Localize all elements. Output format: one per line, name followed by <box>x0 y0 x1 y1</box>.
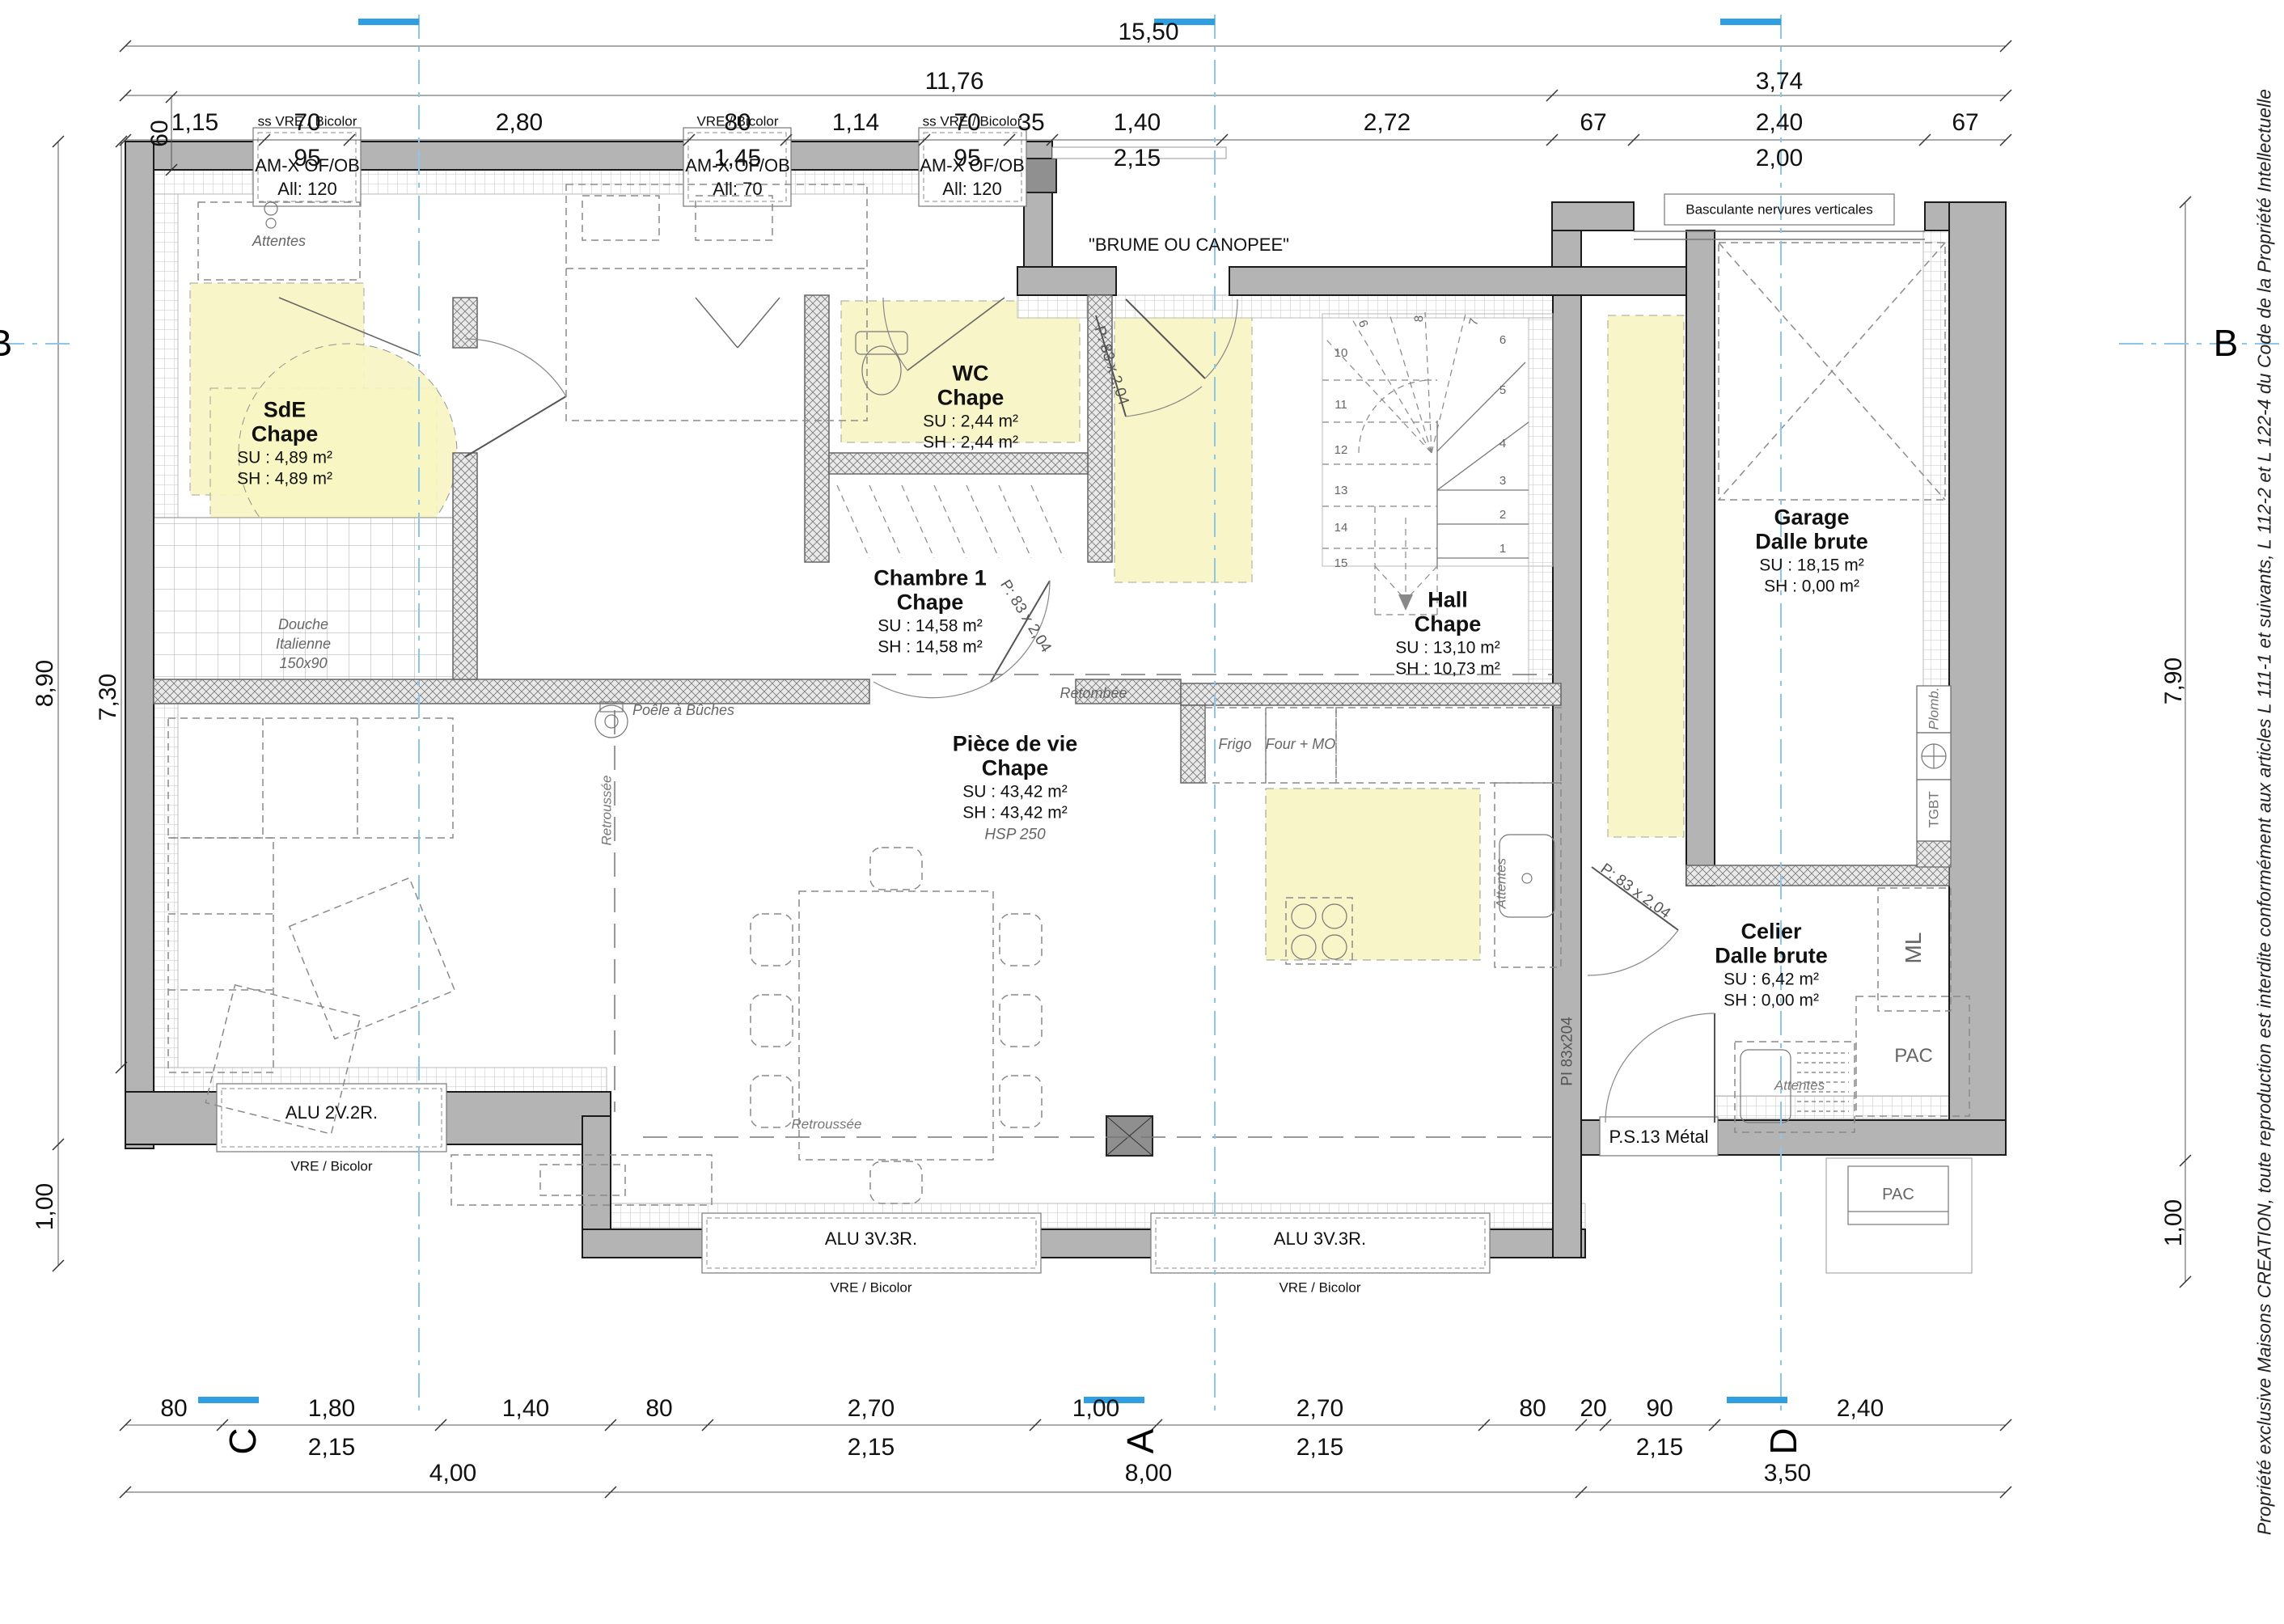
window-sill-label: All: 70 <box>713 180 762 198</box>
dim-bottom: 1,00 <box>1072 1397 1119 1421</box>
dim-top: 2,80 <box>496 111 543 135</box>
room-name-sde: SdE <box>264 400 307 421</box>
douche-label: Italienne <box>276 636 331 651</box>
stair-step-number: 7 <box>1466 317 1482 327</box>
room-su-sde: SU : 4,89 m² <box>237 450 332 467</box>
room-name-celier: Celier <box>1740 921 1801 943</box>
stair-step-number: 15 <box>1334 556 1348 570</box>
four-mo-label: Four + MO <box>1266 737 1336 751</box>
stair-step-number: 11 <box>1334 398 1347 412</box>
room-name-hall: Hall <box>1427 590 1468 611</box>
dim-top-sub: 2,00 <box>1756 146 1803 171</box>
room-note-hsp: HSP 250 <box>984 827 1045 843</box>
dim-bottom: 1,80 <box>308 1397 355 1421</box>
stair-step-number: 2 <box>1499 508 1506 522</box>
room-sh-hall: SH : 10,73 m² <box>1395 661 1500 678</box>
stair-step-number: 4 <box>1499 437 1506 450</box>
dim-bottom: 2,40 <box>1837 1397 1884 1421</box>
stair-step-number: 6 <box>1499 333 1506 347</box>
dim-bottom: 1,40 <box>502 1397 549 1421</box>
dim-bottom-sub: 2,15 <box>308 1436 355 1460</box>
dim-top: 67 <box>1952 111 1978 135</box>
attentes-label: Attentes <box>1495 858 1508 908</box>
room-sh-sde: SH : 4,89 m² <box>237 471 332 488</box>
room-floor-garage: Dalle brute <box>1755 531 1868 553</box>
stair-step-number: 12 <box>1334 443 1348 457</box>
window-type-label: VRE / Bicolor <box>830 1281 911 1295</box>
room-sh-garage: SH : 0,00 m² <box>1764 578 1859 595</box>
stair-step-number: 3 <box>1499 474 1506 488</box>
room-name-piece-de-vie: Pièce de vie <box>953 734 1078 755</box>
section-marker-d: D <box>1765 1427 1802 1454</box>
dim-bottom-sub: 2,15 <box>848 1436 895 1460</box>
dim-total-width: 15,50 <box>1118 20 1178 44</box>
tgbt-label: TGBT <box>1927 791 1941 827</box>
section-marker-b-left: B <box>0 324 12 362</box>
room-floor-wc: Chape <box>937 387 1005 409</box>
dim-bottom-sub: 2,15 <box>1636 1436 1683 1460</box>
stair-step-number: 5 <box>1499 383 1506 397</box>
room-floor-chambre: Chape <box>897 592 964 614</box>
stair-step-number: 8 <box>1412 315 1426 323</box>
room-floor-sde: Chape <box>252 424 319 446</box>
stair-step-number: 13 <box>1334 484 1348 497</box>
window-sill-label: All: 120 <box>942 180 1001 198</box>
dim-bottom: 80 <box>1519 1397 1546 1421</box>
stair-step-number: 10 <box>1334 346 1348 360</box>
room-floor-piece-de-vie: Chape <box>982 758 1049 780</box>
stair-step-number: 1 <box>1499 542 1506 556</box>
room-sh-piece-de-vie: SH : 43,42 m² <box>962 805 1068 822</box>
dim-right: 1,00 <box>2162 1199 2186 1246</box>
dim-bottom: 80 <box>160 1397 187 1421</box>
exterior-door-label: P.S.13 Métal <box>1609 1128 1708 1146</box>
dim-top: 1,14 <box>832 111 879 135</box>
window-label: ALU 3V.3R. <box>825 1230 917 1248</box>
dim-bottom: 90 <box>1646 1397 1673 1421</box>
dim-top: 1,15 <box>171 111 218 135</box>
section-marker-c: C <box>224 1427 261 1454</box>
porch-label: "BRUME OU CANOPEE" <box>1089 236 1289 254</box>
window-sill-label: All: 120 <box>277 180 336 198</box>
room-su-wc: SU : 2,44 m² <box>923 413 1018 430</box>
dim-left: 60 <box>148 120 172 146</box>
room-su-hall: SU : 13,10 m² <box>1395 640 1500 657</box>
dim-top-row2: 11,76 <box>925 70 984 94</box>
frigo-label: Frigo <box>1218 737 1251 751</box>
attentes-label: Attentes <box>1774 1079 1825 1093</box>
dim-top-row2: 3,74 <box>1756 70 1803 94</box>
dim-bottom-row2: 3,50 <box>1764 1461 1811 1486</box>
window-label: ALU 2V.2R. <box>285 1104 378 1122</box>
dim-top-sub: 2,15 <box>1114 146 1161 171</box>
garage-door-projection <box>1719 243 1945 500</box>
window-type-label: ss VRE / Bicolor <box>923 115 1022 129</box>
pac-interior-label: PAC <box>1894 1047 1933 1066</box>
dim-top: 67 <box>1580 111 1606 135</box>
window-label: AM-X OF/OB <box>920 157 1025 175</box>
window-type-label: ss VRE / Bicolor <box>258 115 357 129</box>
garage-door-label: Basculante nervures verticales <box>1686 203 1873 217</box>
window-type-label: VRE / Bicolor <box>696 115 778 129</box>
window-type-label: VRE / Bicolor <box>290 1160 372 1174</box>
window-label: AM-X OF/OB <box>255 157 360 175</box>
room-name-garage: Garage <box>1774 507 1849 529</box>
stairs: 1 2 3 4 5 6 7 8 9 10 11 12 13 14 15 <box>1322 312 1553 615</box>
dim-bottom: 2,70 <box>1296 1397 1343 1421</box>
dimension-ticks <box>53 40 2191 1498</box>
room-floor-celier: Dalle brute <box>1715 945 1828 967</box>
window-label: AM-X OF/OB <box>685 157 790 175</box>
pac-exterior-label: PAC <box>1882 1186 1914 1203</box>
section-marker-a: A <box>1122 1429 1159 1454</box>
dim-bottom: 80 <box>645 1397 672 1421</box>
room-sh-celier: SH : 0,00 m² <box>1724 992 1819 1009</box>
copyright-notice: Propriété exclusive Maisons CREATION, to… <box>2256 89 2274 1535</box>
window-label: ALU 3V.3R. <box>1274 1230 1366 1248</box>
douche-label: Douche <box>278 617 328 632</box>
stair-step-number: 9 <box>1356 318 1372 329</box>
stair-step-number: 14 <box>1334 521 1348 535</box>
dim-bottom-row2: 8,00 <box>1125 1461 1172 1486</box>
retombee-label: Retombée <box>1060 686 1127 700</box>
dim-right: 7,90 <box>2162 658 2186 704</box>
dim-bottom-sub: 2,15 <box>1296 1436 1343 1460</box>
room-name-chambre: Chambre 1 <box>873 568 987 590</box>
window-type-label: VRE / Bicolor <box>1279 1281 1360 1295</box>
plomb-label: Plomb. <box>1927 687 1941 730</box>
dim-top: 2,72 <box>1364 111 1411 135</box>
room-su-garage: SU : 18,15 m² <box>1759 557 1864 574</box>
section-marks <box>198 19 1787 1403</box>
room-sh-wc: SH : 2,44 m² <box>923 434 1018 451</box>
room-su-celier: SU : 6,42 m² <box>1724 971 1819 988</box>
douche-label: 150x90 <box>279 656 327 670</box>
dim-bottom-row2: 4,00 <box>429 1461 476 1486</box>
poele-label: Poêle à Bûches <box>632 703 734 717</box>
dimension-lines <box>58 46 2185 1492</box>
retroussee-label: Retroussée <box>600 776 614 846</box>
room-su-chambre: SU : 14,58 m² <box>878 618 983 635</box>
interior-door-label: PI 83x204 <box>1560 1017 1576 1086</box>
retroussee-label: Retroussée <box>792 1118 862 1131</box>
room-name-wc: WC <box>953 363 989 385</box>
section-marker-b-right: B <box>2214 324 2239 362</box>
room-sh-chambre: SH : 14,58 m² <box>878 639 983 656</box>
room-su-piece-de-vie: SU : 43,42 m² <box>962 784 1068 801</box>
ml-label: ML <box>1902 933 1925 964</box>
dim-left: 1,00 <box>33 1183 57 1230</box>
closet-shelves <box>837 485 1064 558</box>
room-floor-hall: Chape <box>1415 614 1482 636</box>
dim-left: 8,90 <box>33 660 57 707</box>
floor-plan-canvas: 1 2 3 4 5 6 7 8 9 10 11 12 13 14 15 <box>0 0 2284 1624</box>
dim-bottom: 2,70 <box>848 1397 895 1421</box>
dim-left: 7,30 <box>96 674 121 721</box>
dim-bottom: 20 <box>1580 1397 1606 1421</box>
dim-top: 2,40 <box>1756 111 1803 135</box>
attentes-label: Attentes <box>252 234 306 248</box>
dim-top: 1,40 <box>1114 111 1161 135</box>
